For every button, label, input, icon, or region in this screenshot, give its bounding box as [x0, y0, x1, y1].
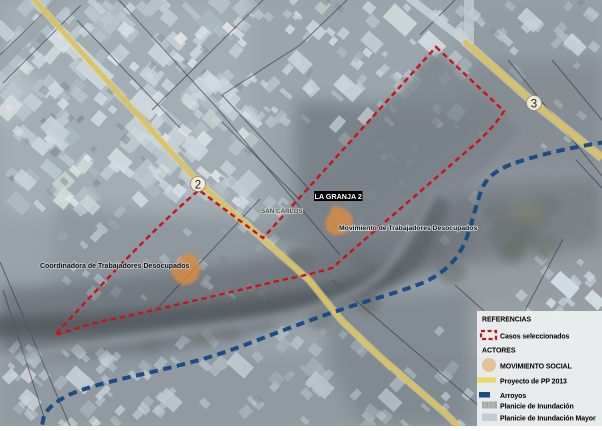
svg-text:Arroyos: Arroyos: [500, 393, 526, 400]
svg-text:ACTORES: ACTORES: [482, 348, 516, 355]
svg-text:Planicie de Inundación: Planicie de Inundación: [500, 404, 574, 411]
svg-text:Planicie de Inundación Mayor: Planicie de Inundación Mayor: [500, 416, 596, 423]
svg-text:Movimiento de Trabajadores Des: Movimiento de Trabajadores Desocupados: [339, 225, 477, 232]
svg-text:Coordinadora de Trabajadores D: Coordinadora de Trabajadores Desocupados: [40, 263, 189, 270]
svg-text:REFERENCIAS: REFERENCIAS: [482, 317, 532, 324]
svg-text:SAN CARLOS: SAN CARLOS: [261, 208, 303, 215]
svg-text:MOVIMIENTO SOCIAL: MOVIMIENTO SOCIAL: [500, 364, 572, 371]
svg-text:Proyecto de PP 2013: Proyecto de PP 2013: [500, 379, 567, 386]
svg-text:LA GRANJA 2: LA GRANJA 2: [315, 192, 362, 201]
svg-text:Casos seleccionados: Casos seleccionados: [500, 334, 570, 341]
svg-text:3: 3: [531, 99, 537, 111]
svg-text:2: 2: [195, 180, 201, 192]
